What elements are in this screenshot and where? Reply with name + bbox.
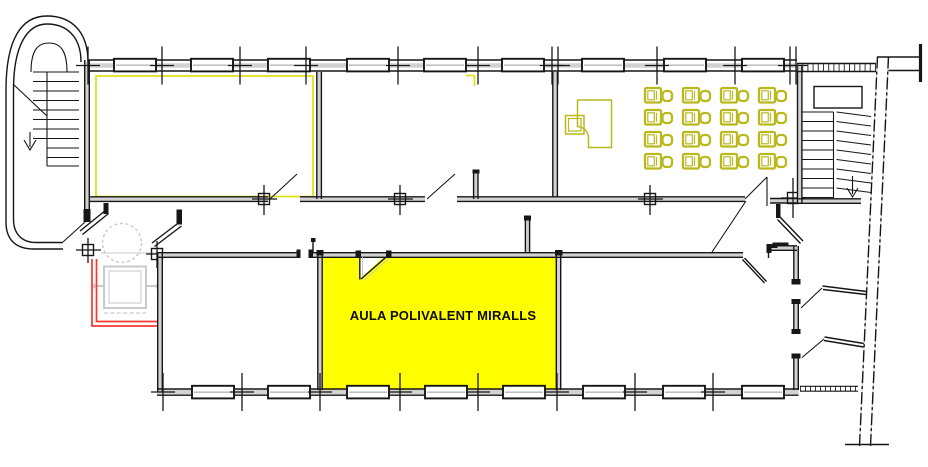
wall-tick xyxy=(645,47,669,85)
window-icon xyxy=(503,386,545,399)
red-highlight-inner xyxy=(97,259,159,322)
direction-arrow-icon xyxy=(847,176,858,197)
window-icon xyxy=(347,386,389,399)
room1-highlight xyxy=(96,76,313,197)
desk-chair-icon xyxy=(759,154,786,169)
stairs-icon xyxy=(837,112,872,193)
direction-arrow-icon xyxy=(24,132,36,150)
wall-tick xyxy=(546,47,570,85)
floor-plan-drawing: AULA POLIVALENT MIRALLS xyxy=(0,0,928,467)
window-icon xyxy=(192,386,234,399)
desk-chair-icon xyxy=(721,132,748,147)
stairs-icon xyxy=(803,112,834,198)
desk-chair-icon xyxy=(721,154,748,169)
window-icon xyxy=(663,386,705,399)
corridor-wall-diagonal xyxy=(778,217,804,244)
desk-chair-icon xyxy=(683,88,710,103)
window-icon xyxy=(502,59,544,72)
wall-tick xyxy=(466,47,490,85)
door-swing-icon xyxy=(801,288,824,358)
window-icon xyxy=(583,386,625,399)
elevator-circle-icon xyxy=(103,224,142,263)
wall-tick xyxy=(386,47,410,85)
ramp-top-rail xyxy=(877,57,921,71)
elevator-car-icon xyxy=(104,267,146,309)
room-highlight-outline xyxy=(96,76,475,197)
window-icon xyxy=(191,59,233,72)
window-icon xyxy=(425,386,467,399)
window-icon xyxy=(582,59,624,72)
wall-tick xyxy=(228,47,252,85)
desk-chair-icon xyxy=(721,88,748,103)
desk-chair-icon xyxy=(759,132,786,147)
wall-tick xyxy=(230,373,254,411)
room-label: AULA POLIVALENT MIRALLS xyxy=(350,308,537,323)
upper-window-row xyxy=(114,59,784,72)
window-icon xyxy=(742,386,784,399)
window-icon xyxy=(114,59,156,72)
elevator-highlight xyxy=(92,259,158,326)
window-icon xyxy=(742,59,784,72)
stairs-icon xyxy=(33,72,79,166)
wall-tick xyxy=(701,373,725,411)
wall-tick xyxy=(151,373,175,411)
wall-tick xyxy=(294,47,318,85)
stair-core-wall xyxy=(31,43,67,72)
corridor-wall-diagonal xyxy=(712,201,746,252)
wall-tick xyxy=(784,47,808,85)
wall-tick xyxy=(723,47,747,85)
window-icon xyxy=(664,59,706,72)
desk-chair-icon xyxy=(683,110,710,125)
desk-chair-icon xyxy=(721,110,748,125)
door-swing-icon xyxy=(743,250,769,283)
door-swing-icon xyxy=(63,222,85,242)
east-doors xyxy=(792,279,867,359)
desk-chair-icon xyxy=(645,88,672,103)
wall-tick xyxy=(150,47,174,85)
desk-chair-icon xyxy=(683,132,710,147)
window-icon xyxy=(268,386,310,399)
floor-plan-page: AULA POLIVALENT MIRALLS xyxy=(0,0,928,467)
right-stairwell xyxy=(797,44,921,446)
classroom-desks xyxy=(645,88,786,169)
classroom xyxy=(566,88,787,169)
wall-tick xyxy=(623,373,647,411)
desk-chair-icon xyxy=(645,154,672,169)
red-highlight-outer xyxy=(92,259,158,326)
desk-chair-icon xyxy=(759,88,786,103)
window-icon xyxy=(424,59,466,72)
teacher-desk-icon xyxy=(578,100,612,148)
ramp-wall xyxy=(860,57,889,447)
window-icon xyxy=(347,59,389,72)
highlighted-room: AULA POLIVALENT MIRALLS xyxy=(320,253,559,391)
desk-chair-icon xyxy=(759,110,786,125)
desk-chair-icon xyxy=(645,132,672,147)
corridor xyxy=(80,201,803,252)
elevator xyxy=(94,224,157,314)
desk-chair-icon xyxy=(683,154,710,169)
stair-landing xyxy=(814,87,862,109)
desk-chair-icon xyxy=(645,110,672,125)
door-leaf-icon xyxy=(823,286,867,347)
room2-highlight-corner xyxy=(466,76,475,87)
